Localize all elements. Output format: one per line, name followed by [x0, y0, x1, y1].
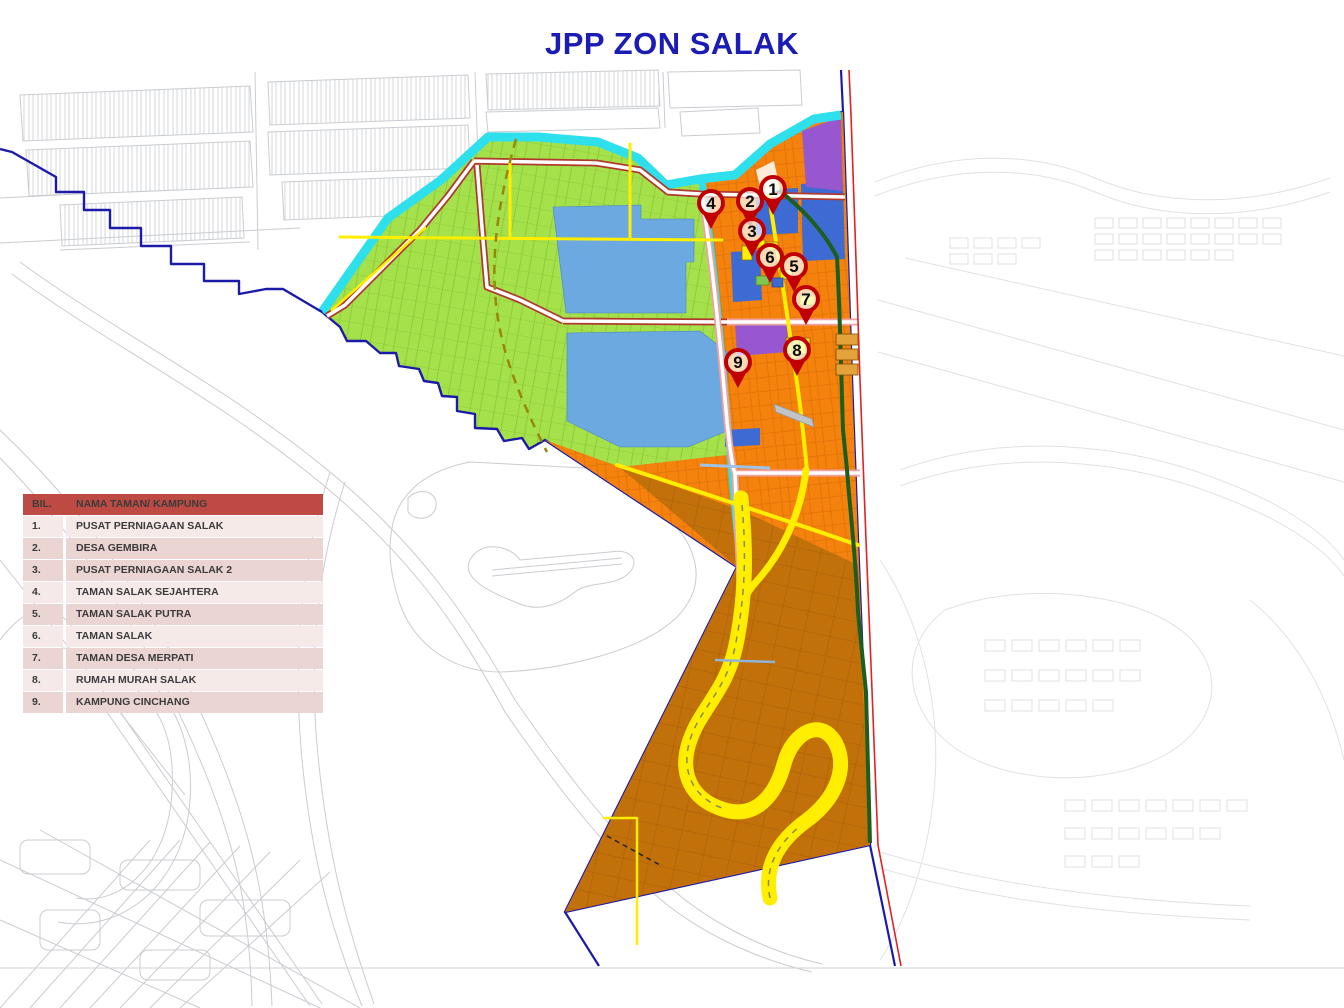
pin-number: 2 [733, 192, 767, 212]
legend-row: 1.PUSAT PERNIAGAAN SALAK [23, 516, 323, 537]
map-pin-9[interactable]: 9 [721, 347, 755, 391]
lake [553, 205, 694, 313]
legend-row: 5.TAMAN SALAK PUTRA [23, 604, 323, 625]
map-pin-7[interactable]: 7 [789, 284, 823, 328]
legend-header-name: NAMA TAMAN/ KAMPUNG [66, 494, 323, 515]
pin-number: 9 [721, 353, 755, 373]
legend-row: 7.TAMAN DESA MERPATI [23, 648, 323, 669]
pin-number: 3 [735, 222, 769, 242]
pin-number: 6 [753, 248, 787, 268]
legend-row: 8.RUMAH MURAH SALAK [23, 670, 323, 691]
lake [567, 331, 727, 447]
legend-row: 9.KAMPUNG CINCHANG [23, 692, 323, 713]
legend-row: 6.TAMAN SALAK [23, 626, 323, 647]
legend-row: 4.TAMAN SALAK SEJAHTERA [23, 582, 323, 603]
pin-number: 7 [789, 290, 823, 310]
legend-header-row: BIL. NAMA TAMAN/ KAMPUNG [23, 494, 323, 515]
map-page: JPP ZON SALAK BIL. NAMA TAMAN/ KAMPUNG 1… [0, 0, 1344, 1008]
legend-header-bil: BIL. [23, 494, 63, 515]
legend-row: 2.DESA GEMBIRA [23, 538, 323, 559]
pin-number: 8 [780, 341, 814, 361]
pin-number: 4 [694, 194, 728, 214]
legend-row: 3.PUSAT PERNIAGAAN SALAK 2 [23, 560, 323, 581]
map-pin-4[interactable]: 4 [694, 188, 728, 232]
map-pin-8[interactable]: 8 [780, 335, 814, 379]
legend-table: BIL. NAMA TAMAN/ KAMPUNG 1.PUSAT PERNIAG… [23, 494, 323, 714]
page-title: JPP ZON SALAK [0, 26, 1344, 62]
map-pin-6[interactable]: 6 [753, 242, 787, 286]
